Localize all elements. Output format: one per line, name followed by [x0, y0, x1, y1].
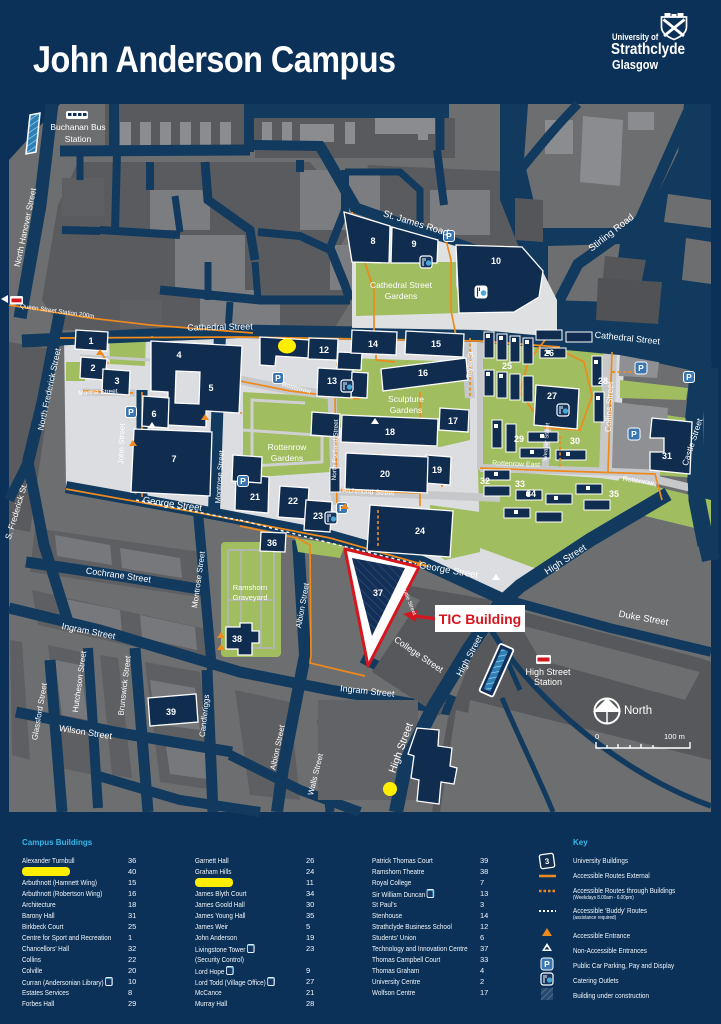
svg-text:P: P	[544, 959, 550, 969]
